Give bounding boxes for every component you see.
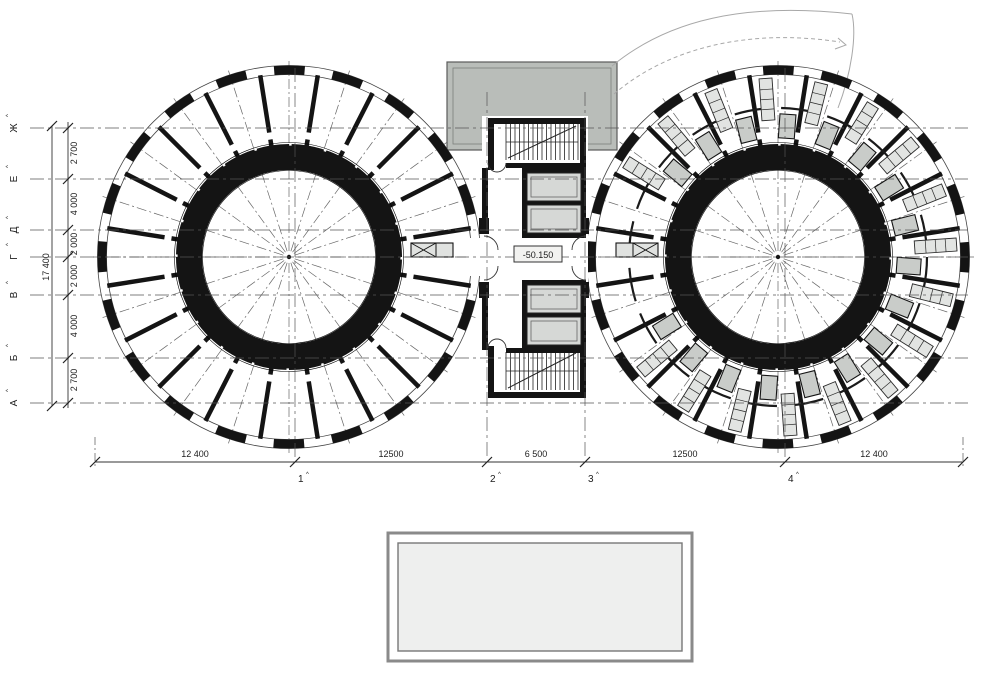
- partition-wall: [260, 75, 269, 132]
- partition-wall: [596, 228, 653, 237]
- row-axis-label: Б: [9, 354, 20, 361]
- col-axis-label: 2: [490, 474, 496, 485]
- bathroom-pod: [717, 364, 741, 392]
- row-dim-3: 2 000: [69, 265, 79, 288]
- partition-wall: [378, 127, 419, 168]
- col-axis-sup: ^: [796, 472, 799, 478]
- col-dim-4: 12 400: [860, 449, 888, 459]
- row-axis-label: Д: [9, 226, 20, 233]
- row-axis-sup: ^: [6, 114, 12, 117]
- bathroom-pod: [680, 343, 708, 372]
- partition-wall: [159, 127, 200, 168]
- row-axis-sup: ^: [6, 216, 12, 219]
- row-dim-0: 2 700: [69, 142, 79, 165]
- partition-wall: [413, 277, 470, 286]
- bathroom-pod: [896, 257, 921, 275]
- row-dim-2: 2 000: [69, 233, 79, 256]
- row-axis-sup: ^: [6, 344, 12, 347]
- row-axis-sup: ^: [6, 165, 12, 168]
- col-axis-label: 3: [588, 474, 594, 485]
- col-axis-sup: ^: [596, 472, 599, 478]
- partition-wall: [378, 346, 419, 387]
- bathroom-pod: [885, 294, 913, 318]
- bathroom-pod: [815, 121, 839, 149]
- elevation-value: -50.150: [523, 250, 554, 260]
- partition-wall: [125, 173, 177, 199]
- partition-wall: [309, 75, 318, 132]
- col-axis-labels: 1 ^ 2 ^ 3 ^ 4 ^: [298, 472, 799, 485]
- row-axis-label: Г: [9, 254, 20, 260]
- floor-plan-page: -50.150 2 700 4 000 2 000 2 000 4 000 2 …: [0, 0, 997, 674]
- partition-wall: [260, 381, 269, 438]
- canopy-edge: [838, 14, 854, 108]
- col-dim-2: 6 500: [525, 449, 548, 459]
- partition-wall: [107, 277, 164, 286]
- partition-wall: [401, 173, 453, 199]
- partition-wall: [205, 93, 231, 145]
- bathroom-pod: [864, 327, 893, 355]
- partition-wall: [798, 75, 807, 132]
- col-dimension-chain: 12 400 12500 6 500 12500 12 400: [90, 437, 968, 468]
- row-axis-label: Ж: [9, 123, 20, 133]
- partition-wall: [401, 314, 453, 340]
- partition-wall: [346, 93, 372, 145]
- partition-wall: [902, 277, 959, 286]
- col-axis-label: 1: [298, 474, 304, 485]
- bathroom-pod: [778, 114, 796, 139]
- row-axis-sup: ^: [6, 389, 12, 392]
- row-dim-1: 4 000: [69, 193, 79, 216]
- bathroom-pod: [848, 142, 876, 171]
- canopy-outer-arc: [612, 10, 852, 66]
- partition-wall: [413, 228, 470, 237]
- row-axis-labels: Ж ^ Е ^ Д ^ Г ^ В ^ Б ^ А ^: [6, 114, 20, 406]
- col-dim-3: 12500: [672, 449, 697, 459]
- partition-wall: [159, 346, 200, 387]
- partition-wall: [205, 369, 231, 421]
- bathroom-pod: [736, 116, 757, 143]
- col-axis-label: 4: [788, 474, 794, 485]
- row-axis-label: Е: [9, 175, 20, 182]
- row-axis-label: В: [9, 291, 20, 298]
- bathroom-pod: [799, 371, 820, 398]
- row-axis-sup: ^: [6, 281, 12, 284]
- row-dimension-chain: 2 700 4 000 2 000 2 000 4 000 2 700 17 4…: [41, 121, 79, 411]
- row-axis-label: А: [9, 399, 20, 406]
- elevation-mark: -50.150: [514, 246, 562, 262]
- partition-wall: [749, 381, 758, 438]
- partition-wall: [309, 381, 318, 438]
- col-axis-sup: ^: [306, 472, 309, 478]
- row-dim-5: 2 700: [69, 369, 79, 392]
- row-total-dim: 17 400: [41, 253, 51, 281]
- col-dim-1: 12500: [378, 449, 403, 459]
- partition-wall: [107, 228, 164, 237]
- partition-wall: [125, 314, 177, 340]
- col-dim-0: 12 400: [181, 449, 209, 459]
- floor-plan-drawing: -50.150 2 700 4 000 2 000 2 000 4 000 2 …: [0, 0, 997, 674]
- tower-center-point: [776, 255, 780, 259]
- partition-wall: [346, 369, 372, 421]
- canopy-arrow-icon: [835, 38, 846, 49]
- pool-slab-outline: [388, 533, 692, 661]
- partition-wall: [596, 277, 653, 286]
- row-dim-4: 4 000: [69, 315, 79, 338]
- bathroom-pod: [892, 215, 919, 236]
- bathroom-pod: [760, 375, 778, 400]
- row-axis-sup: ^: [6, 243, 12, 246]
- col-axis-sup: ^: [498, 472, 501, 478]
- bathroom-pod: [663, 159, 692, 187]
